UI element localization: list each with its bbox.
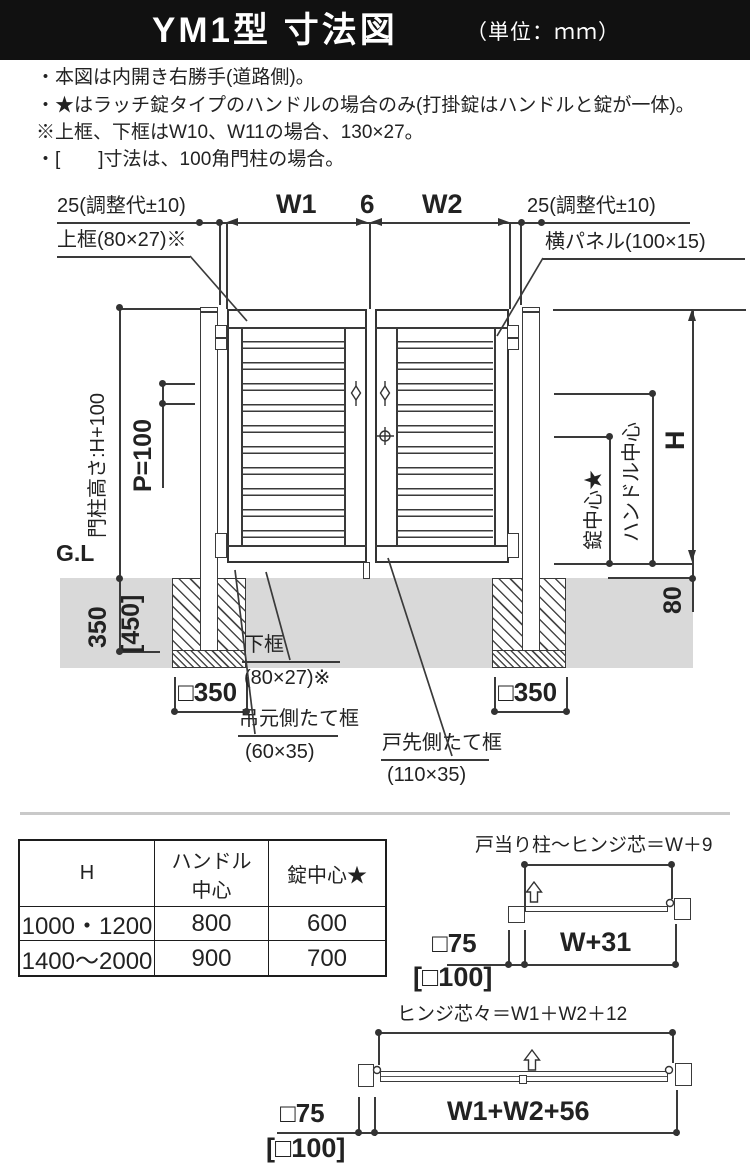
right-post-cap-line: [523, 311, 539, 313]
w2-dim: W2: [422, 189, 463, 219]
dim-dot: [116, 304, 123, 311]
dim-arrow-left: [371, 218, 382, 226]
gate-bottom-ext-line: [554, 563, 694, 565]
table-cell: 1000・1200: [20, 907, 155, 941]
right-leaf-slats: [397, 328, 493, 545]
dim-arrow-up: [688, 309, 696, 321]
plan-w-hinge-dim-line: [524, 864, 671, 866]
dim-dot: [243, 708, 250, 715]
footing-left-label: □350: [178, 678, 237, 707]
pitch-tick: [162, 403, 195, 405]
dim-dot: [606, 433, 613, 440]
dim-dot: [668, 861, 675, 868]
dim-dot: [673, 1129, 680, 1136]
table-cell: 800: [155, 907, 269, 941]
ext-line: [520, 224, 522, 305]
table-cell: 900: [155, 941, 269, 976]
bottom-rail-label: 下框: [244, 634, 284, 656]
pitch-tick: [162, 383, 195, 385]
lock-center-dim-line: [609, 436, 611, 563]
plan-w-title: 戸当り柱〜ヒンジ芯＝W＋9: [475, 835, 713, 856]
dim-dot: [672, 961, 679, 968]
top-rail-label-underline: [57, 256, 190, 258]
dim-arrow-right: [498, 218, 509, 226]
latch-stile-size: (110×35): [387, 764, 466, 786]
latch-stile-underline: [381, 759, 489, 761]
left-leaf-slats: [243, 328, 344, 545]
ext-line: [509, 224, 511, 309]
dim-dot: [606, 560, 613, 567]
hinge-knuckle-line: [215, 337, 227, 339]
dim-dot: [116, 648, 123, 655]
panel-label-underline: [543, 258, 745, 260]
handle-center-line: [554, 393, 652, 395]
dim-dot: [521, 861, 528, 868]
note-line: ・本図は内開き右勝手(道路側)。: [36, 67, 315, 88]
plan-w1w2-title: ヒンジ芯々＝W1＋W2＋12: [397, 1004, 627, 1025]
hinge-knuckle-line: [507, 337, 519, 339]
w1-dim: W1: [276, 189, 317, 219]
gap6-dim: 6: [360, 190, 374, 219]
left-gravel: [172, 650, 246, 668]
footing-right-label: □350: [498, 678, 557, 707]
dim-arrow-right: [356, 218, 367, 226]
note-line: ・★はラッチ錠タイプのハンドルの場合のみ(打掛錠はハンドルと錠が一体)。: [36, 95, 695, 116]
plan-w-stop-post: [508, 906, 525, 923]
ext-line-center: [369, 224, 371, 309]
dim-dot: [521, 961, 528, 968]
post-height-top-tick: [119, 308, 200, 310]
height-label: H: [662, 420, 689, 450]
dim-dot: [669, 1029, 676, 1036]
left-gate-post: [200, 307, 218, 651]
swing-direction-arrow-icon: [527, 882, 542, 902]
ground-level-label: G.L: [56, 541, 94, 567]
top-rail-label: 上框(80×27)※: [57, 229, 187, 251]
table-cell: 700: [269, 941, 385, 976]
unit-label: （単位：ｍｍ）: [466, 21, 620, 45]
dim-arrow-left: [227, 218, 238, 226]
dim-dot: [689, 575, 696, 582]
dim-arrow-down: [688, 550, 696, 562]
gl-ext-line: [608, 577, 694, 579]
plan-w1w2-hinge-dim-line: [378, 1032, 672, 1034]
plan-w-leaf-bar: [525, 906, 668, 912]
swing-direction-arrow-icon: [525, 1050, 540, 1070]
ground-band: [60, 578, 693, 668]
drop-rod: [363, 562, 370, 579]
latch-stile-label: 戸先側たて框: [382, 732, 502, 754]
dim-dot: [505, 961, 512, 968]
left-bottom-rail-line: [227, 545, 367, 547]
handle-center-dim-line: [652, 393, 654, 563]
ext-line: [226, 224, 228, 309]
dimension-table: H ハンドル中心 錠中心★ 1000・1200 800 600 1400〜200…: [18, 839, 387, 977]
dim-dot: [649, 560, 656, 567]
hinge-icon: [507, 533, 519, 558]
plan-w1w2-center-joint: [519, 1075, 527, 1084]
embed-depth-label: 350: [86, 584, 111, 648]
post-height-label: 門柱高さ:H+100: [88, 306, 108, 538]
dim-dot: [196, 219, 203, 226]
lock-center-line: [554, 436, 609, 438]
adjust-dim-right: 25(調整代±10): [527, 195, 656, 217]
bottom-rail-size: (80×27)※: [244, 667, 330, 689]
left-latch-stile-line: [344, 327, 346, 545]
footing-tick: [174, 677, 176, 712]
plan-w-width-dim: W+31: [560, 927, 631, 957]
table-header-h: H: [20, 841, 155, 907]
plan-w-post-dim: □75: [432, 929, 477, 958]
right-gate-post: [522, 307, 540, 651]
bottom-gap-dim-line: [692, 562, 694, 612]
left-post-cap-line: [201, 311, 217, 313]
dim-dot: [649, 390, 656, 397]
dim-dot: [563, 708, 570, 715]
dim-dot: [375, 1029, 382, 1036]
dim-dot: [171, 708, 178, 715]
note-line: ・[ ]寸法は、100角門柱の場合。: [36, 149, 344, 170]
bottom-gap-label: 80: [661, 580, 686, 614]
dim-dot: [159, 380, 166, 387]
right-gravel: [492, 650, 566, 668]
pitch-label: P=100: [131, 390, 156, 492]
adjust-dim-left: 25(調整代±10): [57, 195, 186, 217]
plan-w1w2-right-post: [675, 1063, 692, 1086]
plan-w1w2-post-dim: □75: [280, 1099, 325, 1128]
dim-dot: [116, 575, 123, 582]
hinge-stile-underline: [238, 735, 338, 737]
lock-center-label: 錠中心★: [584, 454, 604, 550]
hinge-icon: [215, 533, 227, 558]
plan-w1w2-left-post: [358, 1064, 374, 1087]
footing-tick: [494, 677, 496, 712]
dim-dot: [538, 219, 545, 226]
table-cell: 600: [269, 907, 385, 941]
title-bar: YM1型 寸法図 （単位：ｍｍ）: [0, 0, 750, 60]
plan-w1w2-drop-line: [672, 1032, 674, 1063]
bottom-rail-underline: [242, 661, 340, 663]
dimension-drawing-page: YM1型 寸法図 （単位：ｍｍ） ・本図は内開き右勝手(道路側)。 ・★はラッチ…: [0, 0, 750, 1173]
section-divider: [20, 812, 730, 815]
plan-w1w2-drop-line: [378, 1032, 380, 1065]
hinge-stile-label: 吊元側たて框: [239, 708, 359, 730]
plan-w-post-alt-dim: [□100]: [413, 962, 492, 992]
note-line: ※上框、下框はW10、W11の場合、130×27。: [36, 122, 424, 143]
dim-dot: [159, 400, 166, 407]
right-bottom-rail-line: [375, 545, 509, 547]
handle-center-label: ハンドル中心: [622, 414, 642, 542]
table-header-handle: ハンドル中心: [155, 841, 269, 907]
footing-tick: [566, 677, 568, 712]
embed-depth-alt-label: [450]: [119, 577, 144, 653]
dim-dot: [518, 219, 525, 226]
plan-w-drop-line: [671, 864, 673, 899]
plan-w1w2-post-alt-dim: [□100]: [266, 1133, 345, 1163]
page-title: YM1型 寸法図: [152, 11, 398, 50]
footing-dim-line: [174, 711, 246, 713]
table-header-lock: 錠中心★: [269, 841, 385, 907]
plan-w-hinge-post: [674, 898, 691, 920]
pitch-dim-line: [162, 383, 164, 488]
dim-dot: [491, 708, 498, 715]
plan-w1w2-width-dim: W1+W2+56: [447, 1096, 590, 1126]
plan-w-drop-line: [524, 864, 526, 906]
dim-dot: [355, 1129, 362, 1136]
table-cell: 1400〜2000: [20, 941, 155, 976]
right-hinge-stile-line: [494, 327, 496, 545]
ext-line: [219, 224, 221, 305]
height-dim-line: [692, 309, 694, 562]
footing-dim-line: [494, 711, 566, 713]
dim-dot: [216, 219, 223, 226]
panel-label: 横パネル(100×15): [545, 231, 706, 253]
gate-top-ext-line: [553, 309, 746, 311]
hinge-stile-size: (60×35): [245, 741, 315, 763]
dim-dot: [371, 1129, 378, 1136]
